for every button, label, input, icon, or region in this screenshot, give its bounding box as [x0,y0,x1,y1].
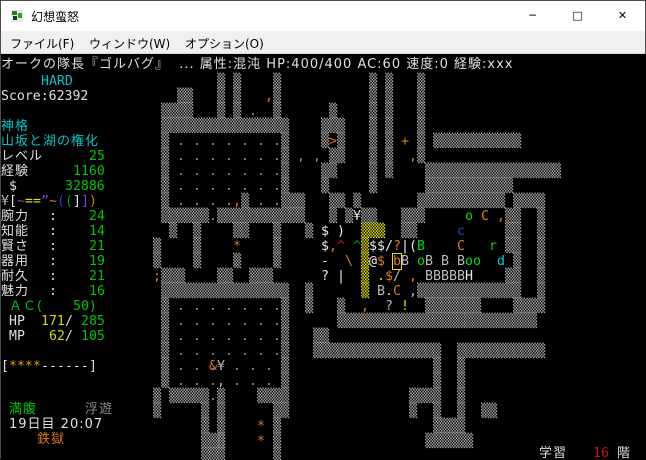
map-wall: ▒ [217,404,225,419]
map-entity: ^ [337,239,345,254]
equipment-slot-glyph: ( [57,194,65,209]
map-wall: ▒ [217,104,225,119]
menu-bar: ファイル(F) ウィンドウ(W) オプション(O) [1,31,645,54]
map-entity: , [313,149,321,164]
map-entity: B [417,239,425,254]
map-wall: ▒▒ [217,269,233,284]
map-entity: ^ [353,239,361,254]
map-wall: ▒ [513,254,521,269]
mp-separator: / [65,329,73,344]
map-wall: ▒ [433,359,441,374]
window-title: 幻想蛮怒 [31,8,79,25]
map-wall: ▒▒▒ [281,194,305,209]
map-entity: c [457,224,465,239]
map-wall: ▒ [273,74,281,89]
stat-value: 19 [89,254,105,269]
map-entity: ▒ [361,239,369,254]
map-wall: ▒ [161,164,169,179]
map-wall: ▒ [233,104,241,119]
map-entity: $$ [369,239,385,254]
map-wall: ▒ [161,359,169,374]
map-wall: ▒ [537,284,545,299]
map-entity: \ [345,254,353,269]
mp-current: 62 [49,329,65,344]
map-wall: ▒▒▒ [201,449,225,460]
map-entity: d [497,254,505,269]
app-icon [9,8,25,24]
equipment-slot-glyph: ~ [17,194,25,209]
map-wall: ▒ [217,419,225,434]
target-health-bar-dashes: ------ [41,359,89,374]
map-wall: ▒ [161,299,169,314]
map-wall: ▒▒▒▒▒▒ [425,434,473,449]
mp-label: MP [9,329,25,344]
deity-label: 神格 [1,119,29,134]
map-floor: . . . . . . . [169,179,281,194]
map-wall: ▒▒▒▒ [409,389,441,404]
map-wall: ▒ [281,329,289,344]
minimize-button[interactable]: ─ [510,1,555,31]
map-wall: ▒ [457,359,465,374]
stat-value: 14 [89,224,105,239]
map-wall: ▒▒ [401,224,417,239]
map-wall: ▒ [321,179,329,194]
target-health-bar-close: ] [89,359,97,374]
map-entity: , [409,284,417,299]
map-wall: ▒▒ [329,194,345,209]
map-wall: ▒ [417,149,425,164]
map-wall: ▒ [385,74,393,89]
map-wall: ▒ [281,179,289,194]
stat-value: 24 [89,209,105,224]
equipment-slot-glyph: = [33,194,41,209]
map-wall: ▒ [385,119,393,134]
map-wall: ▒▒▒▒▒▒▒▒▒▒▒ [457,344,545,359]
map-wall: ▒ [273,224,281,239]
map-entity: r [489,239,497,254]
map-wall: ▒ [457,389,465,404]
map-wall: ▒ [369,104,377,119]
map-floor: . . . . . . . [169,134,281,149]
game-terminal: オークの隊長『ゴルバグ』 ... 属性:混沌 HP:400/400 AC:60 … [1,54,646,460]
hp-separator: / [65,314,73,329]
map-floor: . . . [233,374,273,389]
map-wall: ▒▒ [289,209,305,224]
hp-label: HP [9,314,25,329]
map-entity: o [465,209,473,224]
map-wall: ▒ [233,254,241,269]
map-wall: ▒ [153,239,161,254]
equipment-slot-glyph: = [25,194,33,209]
mp-max: 105 [81,329,105,344]
map-entity: ( [409,239,417,254]
food-status: 満腹 [9,402,37,417]
ac-value: 50) [73,299,97,314]
map-wall: ▒▒▒▒▒▒▒▒▒▒▒▒▒▒▒▒ [161,284,289,299]
map-entity: ¥ [353,209,361,224]
map-wall: ▒ [281,299,289,314]
map-wall: ▒ [457,374,465,389]
exp-label: 経験 [1,164,29,179]
maximize-button[interactable]: □ [555,1,600,31]
level-label: レベル [1,149,43,164]
map-wall: ▒ [217,389,225,404]
map-wall: ▒ [417,119,425,134]
map-entity: @ [369,254,377,269]
equipment-slot-glyph: ] [81,194,89,209]
map-floor: . . . . . . . [169,149,281,164]
map-wall: ▒ [537,224,545,239]
map-entity: , [497,209,505,224]
map-floor: . . [249,194,281,209]
map-wall: ▒ [201,404,209,419]
map-wall: ▒▒ [361,209,377,224]
map-entity: b [393,254,401,269]
map-entity: B [441,254,449,269]
map-wall: ▒▒▒ [321,119,345,134]
game-clock: 19日目 20:07 [9,417,103,432]
map-wall: ▒ [369,164,377,179]
map-wall: ▒▒▒▒ [257,389,289,404]
map-wall: ▒ [281,344,289,359]
map-wall: ▒ [161,329,169,344]
map-floor: . . . [233,359,273,374]
map-wall: ▒ [385,104,393,119]
map-wall: ▒ [153,389,161,404]
map-wall: ▒ [433,404,441,419]
monster-status-bar: オークの隊長『ゴルバグ』 ... 属性:混沌 HP:400/400 AC:60 … [1,57,513,72]
map-wall: ▒ [537,254,545,269]
stat-value: 21 [89,239,105,254]
map-wall: ▒ [201,419,209,434]
gold-label: $ [1,179,17,194]
map-entity: C [481,209,489,224]
map-wall: ▒ [273,239,281,254]
map-wall: ▒ [305,224,313,239]
map-wall: ▒ [281,134,289,149]
map-wall: ▒ [417,134,425,149]
map-wall: ▒▒▒ [161,269,185,284]
map-entity: C [393,284,401,299]
map-entity: B [425,254,433,269]
equipment-slot-glyph: ¥ [1,194,9,209]
target-health-bar-stars: **** [9,359,41,374]
map-wall: ▒ [505,209,513,224]
map-wall: ▒ [513,269,521,284]
map-wall: ▒ [345,209,353,224]
map-floor: . [209,389,217,404]
map-entity: ▒ [361,254,369,269]
map-entity: & [209,359,217,374]
map-wall: ▒ [169,224,177,239]
map-floor: . . . . . . . [169,329,281,344]
map-entity: * [257,419,265,434]
ac-label: ＡＣ( [9,299,43,314]
map-wall: ▒ [233,89,241,104]
map-wall: ▒ [241,194,249,209]
map-floor: . [249,104,257,119]
map-wall: ▒ [281,374,289,389]
map-entity: , [297,149,305,164]
map-wall: ▒▒▒▒ [513,299,545,314]
map-wall: ▒ [217,74,225,89]
map-entity: ? [385,299,393,314]
equipment-slot-glyph: ” [41,194,49,209]
map-wall: ▒▒▒▒ [513,194,545,209]
map-wall: ▒ [321,134,329,149]
hp-current: 171 [41,314,65,329]
target-health-bar-open: [ [1,359,9,374]
title-bar: 幻想蛮怒 ─ □ ✕ [1,1,645,31]
map-wall: ▒ [281,164,289,179]
map-wall: ▒ [273,254,281,269]
place-name: 鉄獄 [37,432,65,447]
map-wall: ▒ [161,374,169,389]
map-wall: ▒ [273,419,281,434]
map-entity: - [321,254,329,269]
map-entity: | [337,269,345,284]
map-entity: | [401,239,409,254]
map-wall: ▒ [457,404,465,419]
stat-label: 腕力 [1,209,29,224]
map-wall: ▒▒ [481,404,497,419]
map-wall: ▒ [505,239,513,254]
map-wall: ▒▒ [329,149,345,164]
map-wall: ▒▒▒▒ [161,104,193,119]
equipment-slot-glyph: ] [73,194,81,209]
map-wall: ▒ [161,344,169,359]
map-wall: ▒ [513,209,521,224]
map-wall: ▒ [409,404,417,419]
map-wall: ▒ [337,134,345,149]
map-floor: . . . . [169,194,233,209]
level-value: 25 [89,149,105,164]
stat-label: 器用 [1,254,29,269]
map-entity: ▒ [361,284,369,299]
score-line: Score:62392 [1,89,88,104]
levitation-status: 浮遊 [85,402,113,417]
map-entity: H [465,269,473,284]
map-entity: . [377,269,385,284]
map-wall: ▒ [153,404,161,419]
map-wall: ▒ [193,224,201,239]
map-wall: ▒ [537,209,545,224]
map-wall: ▒▒▒ [401,209,425,224]
map-entity: ) [337,224,345,239]
map-entity: o [417,254,425,269]
equipment-slot-glyph: [ [9,194,17,209]
map-wall: ▒ [513,224,521,239]
map-wall: ▒ [417,74,425,89]
map-entity: , [409,149,417,164]
map-entity: $ [377,254,385,269]
stat-label: 知能 [1,224,29,239]
map-wall: ▒▒ [273,404,289,419]
map-wall: ▒▒▒▒▒▒ [161,209,209,224]
depth-value: 16 [593,446,609,460]
map-floor: . . . . . . . [169,164,281,179]
map-wall: ▒ [281,149,289,164]
map-entity: B [401,254,409,269]
map-wall: ▒ [273,89,281,104]
map-wall: ▒ [417,89,425,104]
map-floor: . . . . . . . [169,299,281,314]
map-entity: ▒▒▒ [361,224,385,239]
map-wall: ▒▒ [321,164,337,179]
map-floor: . . . . . . . [169,344,281,359]
stat-colon: : [49,209,57,224]
map-wall: ▒ [369,134,377,149]
map-entity: + [401,134,409,149]
study-label: 学習 [539,446,567,460]
map-wall: ▒ [329,209,337,224]
map-entity: , [217,374,225,389]
map-wall: ▒ [273,434,281,449]
map-entity: ¥ [217,359,225,374]
map-wall: ▒ [513,239,521,254]
map-wall: ▒▒▒▒▒▒▒▒▒▒▒▒ [417,284,513,299]
map-wall: ▒ [385,149,393,164]
map-entity: C [457,239,465,254]
equipment-slot-glyph: ) [89,194,97,209]
map-entity: $ [321,224,329,239]
map-entity: . [385,284,393,299]
map-wall: ▒ [217,434,225,449]
map-entity: > [329,134,337,149]
equipment-slot-glyph: ~ [49,194,57,209]
map-wall: ▒▒▒▒▒▒▒▒▒▒▒▒▒▒▒▒ [313,344,441,359]
map-wall: ▒ [161,149,169,164]
equipment-slot-glyph: ( [65,194,73,209]
map-wall: ▒ [417,104,425,119]
map-wall: ▒ [369,149,377,164]
stat-colon: : [49,254,57,269]
map-entity: * [257,434,265,449]
map-entity: / [393,269,401,284]
map-wall: ▒ [153,254,161,269]
map-wall: ▒ [385,89,393,104]
map-wall: ▒▒▒▒▒▒▒ [425,299,481,314]
map-wall: ▒ [537,239,545,254]
map-wall: ▒ [353,194,361,209]
deity-name: 山坂と湖の権化 [1,134,99,149]
map-entity: B [377,284,385,299]
map-entity: ? [321,269,329,284]
stat-colon: : [49,239,57,254]
stat-label: 耐久 [1,269,29,284]
map-entity: BBBBB [425,269,465,284]
map-wall: ▒▒ [177,89,193,104]
stat-colon: : [49,284,57,299]
map-wall: ▒▒▒▒ [433,419,465,434]
menu-option[interactable]: オプション(O) [185,35,264,52]
map-wall: ▒ [161,194,169,209]
map-entity: ? [393,239,401,254]
map-floor: . . . . . . . [169,314,281,329]
map-entity: oo [465,254,481,269]
depth-unit: 階 [617,446,631,460]
map-wall: ▒ [385,164,393,179]
close-button[interactable]: ✕ [600,1,645,31]
map-entity: * [233,239,241,254]
map-entity: , [409,269,417,284]
map-wall: ▒ [193,254,201,269]
map-wall: ▒▒▒▒▒▒▒▒▒ [217,209,289,224]
stat-label: 賢さ [1,239,29,254]
map-wall: ▒ [369,89,377,104]
map-entity: , [233,194,241,209]
map-wall: ▒ [161,134,169,149]
map-entity: ▒ [361,269,369,284]
map-wall: ▒ [305,284,313,299]
map-wall: ▒▒ [313,329,329,344]
map-wall: ▒ [273,104,281,119]
map-wall: ▒▒▒ [249,269,273,284]
map-wall: ▒ [217,89,225,104]
map-wall: ▒ [505,269,513,284]
map-wall: ▒▒▒▒▒▒▒▒▒▒▒▒▒▒▒▒▒ [425,164,561,179]
map-entity: ! [401,299,409,314]
hp-max: 285 [81,314,105,329]
gold-value: 32886 [65,179,105,194]
map-wall: ▒▒▒▒▒▒▒▒▒▒▒▒▒▒▒▒▒▒▒▒▒▒▒▒▒ [337,314,537,329]
menu-file[interactable]: ファイル(F) [10,35,74,52]
map-entity: $ [321,239,329,254]
map-wall: ▒ [193,239,201,254]
map-wall: ▒ [161,314,169,329]
map-wall: ▒ [329,104,337,119]
map-wall: ▒▒▒▒▒▒▒▒▒▒▒ [425,179,513,194]
stat-colon: : [49,224,57,239]
map-entity: $ [385,269,393,284]
stat-colon: : [49,269,57,284]
app-window: 幻想蛮怒 ─ □ ✕ ファイル(F) ウィンドウ(W) オプション(O) オーク… [0,0,646,459]
menu-window[interactable]: ウィンドウ(W) [89,35,170,52]
map-wall: ▒ [505,224,513,239]
map-wall: ▒ [369,74,377,89]
map-wall: ▒ [433,374,441,389]
map-entity: ; [153,269,161,284]
difficulty-label: HARD [41,74,73,89]
map-wall: ▒ [161,179,169,194]
map-wall: ▒ [273,449,281,460]
map-wall: ▒ [233,74,241,89]
map-wall: ▒ [369,179,377,194]
map-wall: ▒ [305,299,313,314]
map-wall: ▒▒▒▒▒▒▒▒▒▒▒ [417,194,505,209]
map-entity: B [457,254,465,269]
map-entity: / [385,239,393,254]
stat-label: 魅力 [1,284,29,299]
map-wall: ▒▒▒▒▒▒▒▒▒▒▒▒▒▒▒▒ [161,119,289,134]
exp-value: 1160 [73,164,105,179]
map-wall: ▒▒ [233,224,249,239]
map-wall: ▒ [281,314,289,329]
map-wall: ▒ [337,299,345,314]
map-entity: , [329,239,337,254]
map-wall: ▒ [281,359,289,374]
map-wall: ▒▒▒▒▒ [169,389,209,404]
stat-value: 21 [89,269,105,284]
map-wall: ▒ [537,269,545,284]
stat-value: 16 [89,284,105,299]
map-floor: . [209,209,217,224]
map-wall: ▒ [385,134,393,149]
map-wall: ▒▒▒▒▒▒▒▒▒▒▒ [433,134,521,149]
map-entity: , [265,89,273,104]
map-entity: , [361,299,369,314]
map-wall: ▒ [369,119,377,134]
